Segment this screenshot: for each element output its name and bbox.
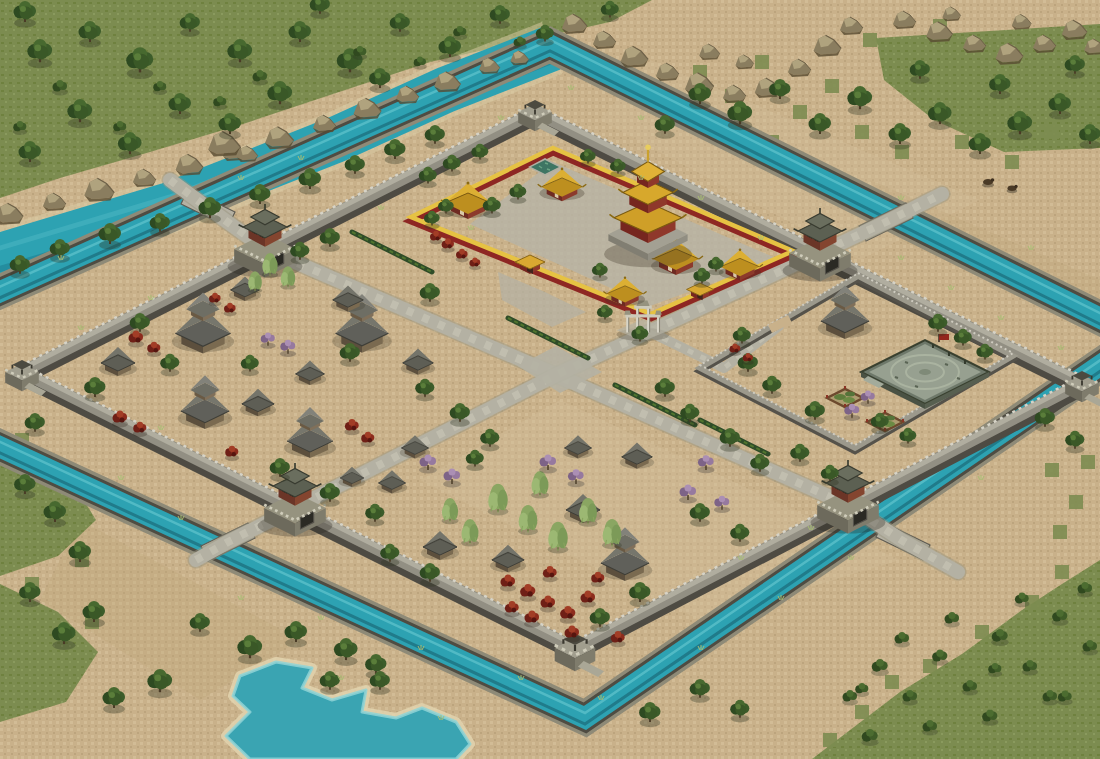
grass-tile [1045, 463, 1059, 477]
grass-tile [755, 55, 769, 69]
grass-tile [1081, 455, 1095, 469]
grass-tile [863, 33, 877, 47]
grass-tile [1055, 565, 1069, 579]
grass-tile [823, 733, 837, 747]
grass-tile [1069, 495, 1083, 509]
grass-tile [825, 79, 839, 93]
isometric-city-map[interactable] [0, 0, 1100, 759]
grass-tile [975, 625, 989, 639]
grass-tile [855, 125, 869, 139]
grass-tile [855, 705, 869, 719]
grass-tile [955, 135, 969, 149]
grass-tile [1005, 155, 1019, 169]
grass-tile [885, 675, 899, 689]
grass-tile [793, 105, 807, 119]
grass-tile [1045, 125, 1059, 139]
game-viewport[interactable] [0, 0, 1100, 759]
grass-tile [1053, 525, 1067, 539]
